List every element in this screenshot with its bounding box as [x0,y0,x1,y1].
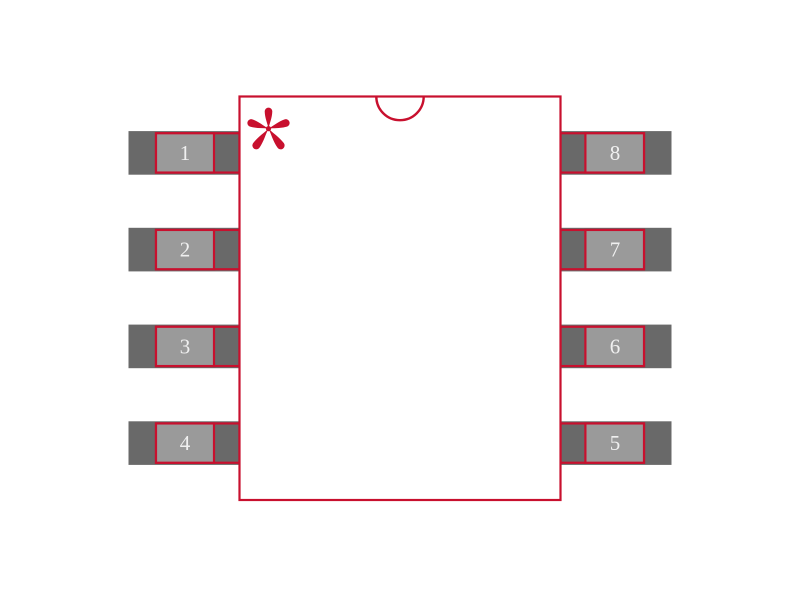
svg-text:8: 8 [610,141,621,165]
svg-text:6: 6 [610,334,621,358]
svg-text:5: 5 [610,431,621,455]
svg-text:7: 7 [610,238,621,262]
svg-text:1: 1 [180,141,191,165]
svg-text:4: 4 [180,431,191,455]
svg-text:2: 2 [180,238,191,262]
svg-text:3: 3 [180,334,191,358]
